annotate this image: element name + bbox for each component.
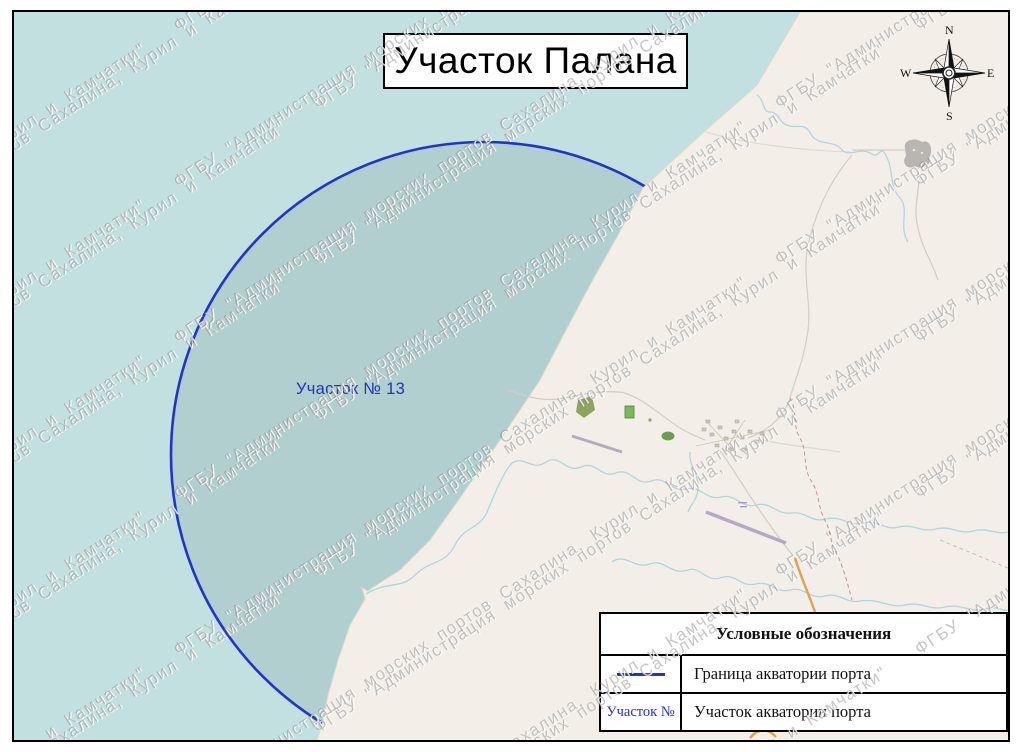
legend-site-label: Участок акватории порта bbox=[682, 694, 1006, 730]
map-page: Участок Палана Участок № 13 bbox=[0, 0, 1024, 752]
compass-rose-icon bbox=[899, 23, 999, 123]
legend-boundary-label: Граница акватории порта bbox=[682, 656, 1006, 692]
legend-title: Условные обозначения bbox=[601, 614, 1006, 656]
compass-s-label: S bbox=[946, 109, 953, 124]
legend-row-site: Участок № Участок акватории порта bbox=[601, 692, 1006, 730]
compass-w-label: W bbox=[900, 66, 911, 81]
compass-rose: N S E W bbox=[899, 23, 999, 123]
legend-site-symbol: Участок № bbox=[601, 694, 682, 730]
legend-row-boundary: Граница акватории порта bbox=[601, 656, 1006, 692]
map-title: Участок Палана bbox=[394, 40, 677, 82]
terrain-blob bbox=[904, 140, 931, 168]
legend-site-symbol-text: Участок № bbox=[606, 704, 674, 721]
map-title-box: Участок Палана bbox=[383, 33, 688, 89]
blue-line-icon bbox=[617, 673, 665, 676]
map-frame: Участок Палана Участок № 13 bbox=[12, 10, 1010, 742]
legend: Условные обозначения Граница акватории п… bbox=[599, 612, 1008, 732]
compass-e-label: E bbox=[987, 66, 994, 81]
compass-n-label: N bbox=[945, 23, 954, 38]
site-label: Участок № 13 bbox=[296, 380, 405, 399]
legend-boundary-symbol bbox=[601, 656, 682, 692]
